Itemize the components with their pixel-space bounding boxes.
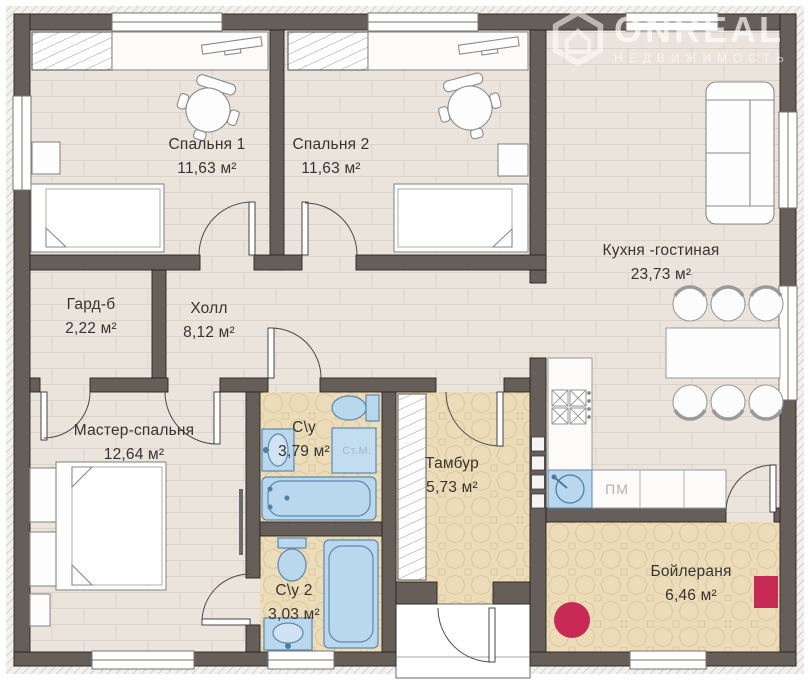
watermark-brand: ONREAL	[614, 12, 790, 48]
room-label-bedroom-2: Спальня 2 11,63 м²	[292, 133, 369, 181]
room-label-boiler-room: Бойлераня 6,46 м²	[650, 560, 731, 608]
porch	[396, 604, 530, 678]
bathtub-icon	[262, 477, 376, 520]
toilet-icon	[278, 538, 306, 581]
window-kitchen-right-1	[779, 112, 797, 208]
onreal-logo-icon	[552, 10, 604, 66]
boiler-icon	[754, 576, 778, 608]
window-bathroom2-bottom	[268, 651, 334, 669]
sofa-icon	[706, 82, 774, 224]
room-label-master-bedroom: Мастер-спальня 12,64 м²	[74, 419, 194, 467]
window-bedroom1-left	[13, 96, 31, 190]
window-master-bottom	[92, 651, 194, 669]
dishwasher-label: ПМ	[605, 481, 629, 497]
nightstand-icon	[30, 468, 56, 522]
dresser-icon	[30, 594, 50, 626]
kitchen-sink-icon	[548, 470, 592, 508]
watermark-tagline: НЕДВИЖИМОСТЬ	[614, 51, 790, 65]
room-label-bedroom-1: Спальня 1 11,63 м²	[168, 133, 245, 181]
room-label-bathroom-2: С\у 2 3,03 м²	[268, 579, 320, 627]
room-label-hall: Холл 8,12 м²	[183, 297, 235, 345]
wardrobe-icon	[32, 32, 112, 70]
window-bedroom1-top	[112, 13, 222, 31]
bathtub-icon	[324, 540, 378, 648]
room-label-wardrobe: Гард-б 2,22 м²	[65, 293, 117, 341]
nightstand-icon	[30, 532, 56, 586]
vestibule-closet-icon	[398, 394, 426, 580]
dining-table-icon	[666, 328, 780, 378]
room-label-bathroom-1: С\у 3,79 м²	[278, 416, 330, 464]
floor-plan-page: ONREAL НЕДВИЖИМОСТЬ Спальня 1 11,63 м² С…	[0, 0, 810, 680]
window-boiler-bottom	[630, 651, 706, 669]
wardrobe-icon	[288, 32, 368, 70]
window-bedroom2-top	[368, 13, 478, 31]
washing-machine-label: Ст.М.	[342, 445, 372, 457]
desk-icon	[368, 32, 528, 70]
watermark: ONREAL НЕДВИЖИМОСТЬ	[552, 10, 790, 66]
room-label-kitchen-living: Кухня -гостиная 23,73 м²	[603, 239, 720, 287]
water-tank-icon	[554, 602, 590, 638]
room-label-vestibule: Тамбур 5,73 м²	[425, 452, 479, 500]
desk-icon	[112, 32, 268, 70]
nightstand-icon	[32, 142, 60, 174]
nightstand-icon	[498, 144, 528, 176]
toilet-icon	[332, 395, 379, 421]
tv-icon	[239, 489, 243, 555]
